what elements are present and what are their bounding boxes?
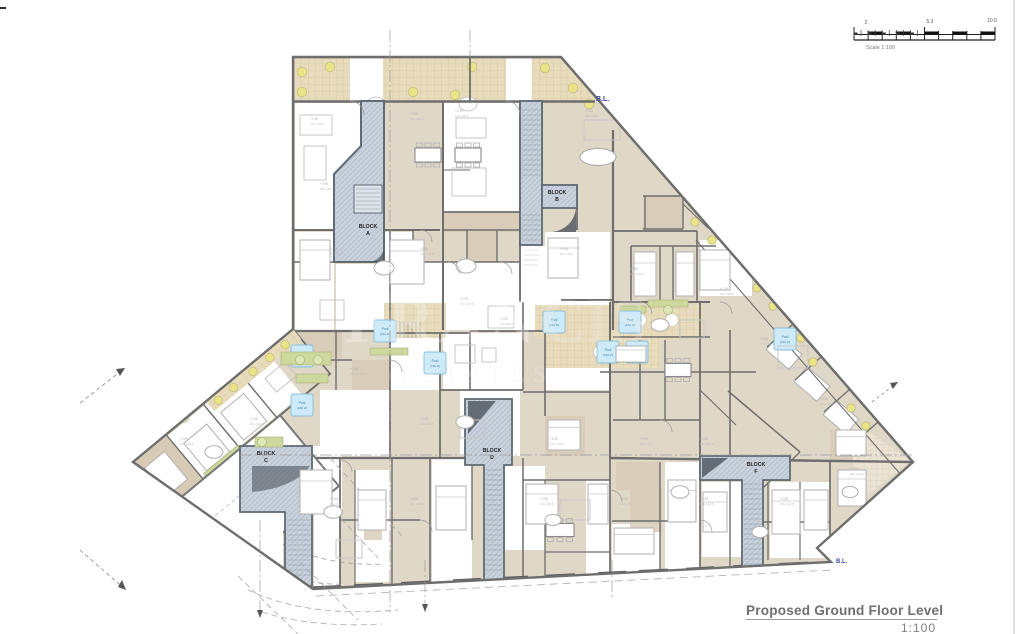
svg-text:FFL 102.5: FFL 102.5	[420, 252, 434, 256]
svg-text:FFL 102.5: FFL 102.5	[540, 502, 554, 506]
svg-text:+2.95: +2.95	[330, 497, 338, 501]
svg-text:(240 sf): (240 sf)	[297, 406, 307, 410]
svg-text:BLOCK: BLOCK	[359, 224, 378, 230]
svg-text:FFL 102.5: FFL 102.5	[410, 117, 424, 121]
svg-text:FFL 102.5: FFL 102.5	[640, 442, 654, 446]
svg-text:+2.95: +2.95	[420, 417, 428, 421]
svg-text:5.3: 5.3	[927, 19, 934, 25]
svg-text:C: C	[264, 458, 268, 464]
svg-text:+2.95: +2.95	[700, 497, 708, 501]
svg-text:+2.95: +2.95	[720, 287, 728, 291]
svg-text:FFL 102.5: FFL 102.5	[720, 292, 734, 296]
svg-text:B.L.: B.L.	[596, 96, 609, 103]
svg-text:10.0: 10.0	[987, 18, 997, 24]
svg-text:+2.95: +2.95	[780, 497, 788, 501]
svg-text:FFL 102.5: FFL 102.5	[410, 502, 424, 506]
svg-text:FFL 102.5: FFL 102.5	[760, 342, 774, 346]
svg-text:+2.95: +2.95	[320, 182, 328, 186]
svg-text:FFL 102.5: FFL 102.5	[310, 122, 324, 126]
svg-text:+2.95: +2.95	[820, 397, 828, 401]
svg-text:+2.95: +2.95	[410, 112, 418, 116]
svg-text:FFL 102.5: FFL 102.5	[420, 422, 434, 426]
svg-text:B.L.: B.L.	[836, 559, 848, 565]
svg-text:FFL 102.5: FFL 102.5	[455, 114, 469, 118]
svg-text:BLOCK: BLOCK	[483, 448, 502, 454]
svg-text:+2.95: +2.95	[455, 109, 463, 113]
svg-text:FFL 102.5: FFL 102.5	[700, 442, 714, 446]
svg-text:+2.95: +2.95	[560, 247, 568, 251]
svg-text:FFL 102.5: FFL 102.5	[850, 472, 864, 476]
svg-text:FFL 102.5: FFL 102.5	[620, 502, 634, 506]
svg-text:+2.95: +2.95	[640, 437, 648, 441]
svg-text:FFL 102.5: FFL 102.5	[585, 114, 599, 118]
svg-text:B: B	[555, 197, 559, 203]
svg-text:CIS: CIS	[540, 285, 647, 356]
svg-text:2: 2	[865, 20, 868, 26]
svg-text:FFL 102.5: FFL 102.5	[180, 442, 194, 446]
svg-text:FFL 102.5: FFL 102.5	[820, 402, 834, 406]
svg-text:F: F	[754, 469, 757, 475]
svg-text:FFL 102.5: FFL 102.5	[320, 187, 334, 191]
svg-text:+2.95: +2.95	[630, 267, 638, 271]
svg-text:+2.95: +2.95	[540, 497, 548, 501]
svg-text:+2.95: +2.95	[420, 247, 428, 251]
svg-text:Proposed Ground Floor Level: Proposed Ground Floor Level	[746, 603, 943, 618]
svg-text:FFL 102.5: FFL 102.5	[560, 252, 574, 256]
svg-text:Pool: Pool	[299, 401, 306, 405]
svg-text:BLOCK: BLOCK	[548, 190, 567, 196]
svg-text:ESTATES: ESTATES	[400, 362, 554, 388]
svg-text:FFL 102.5: FFL 102.5	[330, 252, 344, 256]
svg-text:FFL 102.5: FFL 102.5	[630, 272, 644, 276]
svg-text:+2.95: +2.95	[620, 497, 628, 501]
svg-text:+2.95: +2.95	[850, 467, 858, 471]
svg-text:FFL 102.5: FFL 102.5	[550, 442, 564, 446]
svg-text:+2.95: +2.95	[585, 109, 593, 113]
svg-text:+2.95: +2.95	[700, 437, 708, 441]
svg-text:+2.95: +2.95	[550, 437, 558, 441]
svg-text:+2.95: +2.95	[330, 247, 338, 251]
svg-text:FRAN: FRAN	[345, 285, 539, 356]
svg-text:+2.95: +2.95	[250, 417, 258, 421]
svg-text:BLOCK: BLOCK	[747, 462, 766, 468]
svg-text:FFL 102.5: FFL 102.5	[700, 502, 714, 506]
svg-text:FFL 102.5: FFL 102.5	[250, 422, 264, 426]
svg-text:(240 sf): (240 sf)	[780, 340, 790, 344]
svg-text:+2.95: +2.95	[350, 367, 358, 371]
svg-text:Pool: Pool	[782, 335, 789, 339]
svg-text:A: A	[366, 231, 370, 237]
svg-text:+2.95: +2.95	[760, 337, 768, 341]
svg-text:+2.95: +2.95	[180, 437, 188, 441]
svg-text:+2.95: +2.95	[410, 497, 418, 501]
svg-text:+2.95: +2.95	[310, 117, 318, 121]
svg-text:FFL 102.5: FFL 102.5	[350, 372, 364, 376]
svg-text:FFL 102.5: FFL 102.5	[330, 502, 344, 506]
svg-text:FFL 102.5: FFL 102.5	[780, 502, 794, 506]
svg-text:1:100: 1:100	[901, 621, 936, 634]
svg-text:Scale 1:100: Scale 1:100	[866, 45, 895, 51]
svg-text:BLOCK: BLOCK	[257, 451, 276, 457]
svg-text:D: D	[490, 455, 494, 461]
